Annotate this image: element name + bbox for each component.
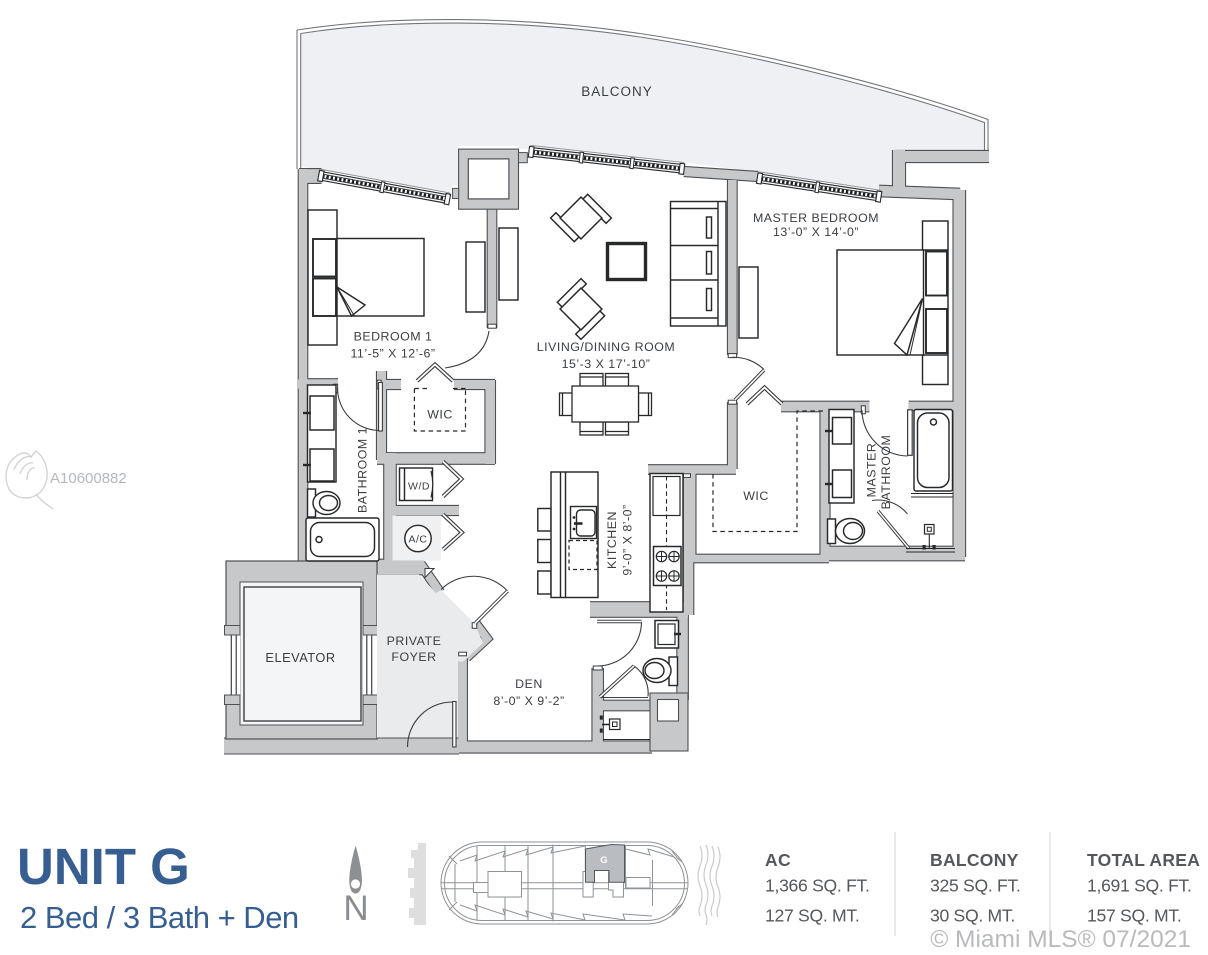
svg-text:15’-3 X 17’-10”: 15’-3 X 17’-10” (562, 357, 651, 371)
svg-text:WIC: WIC (427, 408, 453, 422)
svg-text:325 SQ. FT.: 325 SQ. FT. (930, 876, 1021, 896)
svg-text:127 SQ. MT.: 127 SQ. MT. (765, 906, 859, 926)
svg-text:TOTAL AREA: TOTAL AREA (1087, 850, 1200, 870)
svg-text:MASTER BEDROOM: MASTER BEDROOM (753, 211, 879, 225)
svg-text:9’-0” X 8’-0”: 9’-0” X 8’-0” (621, 504, 635, 575)
svg-text:UNIT G: UNIT G (17, 838, 190, 895)
svg-text:A10600882: A10600882 (50, 470, 127, 487)
svg-text:G: G (600, 855, 607, 866)
svg-text:11’-5” X 12’-6”: 11’-5” X 12’-6” (350, 347, 435, 361)
svg-text:KITCHEN: KITCHEN (605, 511, 619, 569)
svg-text:N: N (343, 889, 368, 928)
svg-text:BATHROOM 1: BATHROOM 1 (356, 427, 370, 513)
svg-text:1,691 SQ. FT.: 1,691 SQ. FT. (1087, 876, 1192, 896)
svg-text:ELEVATOR: ELEVATOR (265, 650, 335, 665)
svg-text:BATHROOM: BATHROOM (879, 435, 893, 510)
svg-text:BALCONY: BALCONY (930, 850, 1019, 870)
svg-text:AC: AC (765, 850, 791, 870)
svg-text:1,366 SQ. FT.: 1,366 SQ. FT. (765, 876, 870, 896)
svg-text:PRIVATE: PRIVATE (387, 634, 442, 648)
svg-text:FOYER: FOYER (391, 650, 436, 664)
svg-text:2 Bed / 3 Bath + Den: 2 Bed / 3 Bath + Den (20, 900, 299, 935)
svg-text:A/C: A/C (408, 534, 427, 546)
svg-text:DEN: DEN (515, 677, 543, 691)
svg-text:WIC: WIC (743, 489, 769, 503)
svg-text:8’-0” X 9’-2”: 8’-0” X 9’-2” (493, 694, 564, 708)
svg-text:BEDROOM 1: BEDROOM 1 (354, 330, 433, 344)
svg-text:W/D: W/D (408, 481, 430, 493)
svg-text:157 SQ. MT.: 157 SQ. MT. (1087, 906, 1181, 926)
svg-text:LIVING/DINING ROOM: LIVING/DINING ROOM (537, 340, 675, 354)
svg-text:MASTER: MASTER (865, 443, 879, 498)
svg-text:30 SQ. MT.: 30 SQ. MT. (930, 906, 1015, 926)
svg-text:© Miami MLS® 07/2021: © Miami MLS® 07/2021 (930, 926, 1191, 953)
svg-text:13’-0” X 14’-0”: 13’-0” X 14’-0” (773, 225, 859, 239)
svg-text:BALCONY: BALCONY (581, 84, 653, 99)
